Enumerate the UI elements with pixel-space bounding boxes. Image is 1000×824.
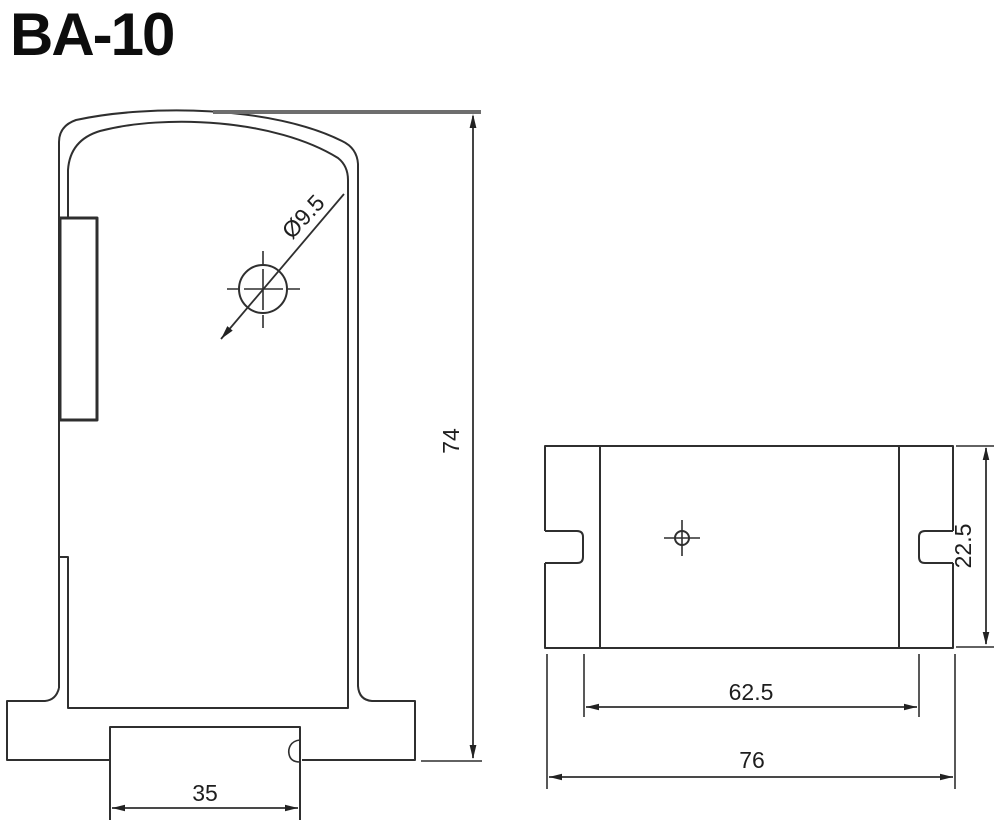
front-dim-rail-width-arrow-right	[285, 805, 298, 812]
side-view: 22.5 62.5 76	[545, 446, 994, 789]
side-outer-profile	[545, 446, 953, 648]
front-left-tab	[60, 218, 97, 420]
side-dim-overall-width-arrow-left	[549, 774, 562, 781]
front-hole-diameter-label: Ø9.5	[277, 189, 330, 243]
front-dim-rail-width-label: 35	[192, 780, 218, 806]
front-dim-height-label: 74	[438, 428, 464, 454]
side-dim-height-arrow-top	[983, 447, 990, 460]
side-dim-height-label: 22.5	[950, 524, 976, 569]
side-dim-inner-span-label: 62.5	[729, 679, 774, 705]
drawing-canvas: BA-10 Ø9.5	[0, 0, 1000, 824]
front-dim-height-arrow-top	[470, 114, 477, 128]
front-hole-leader-line	[221, 194, 344, 339]
front-dim-rail-width: 35	[112, 780, 298, 811]
front-dim-height-arrow-bottom	[470, 745, 477, 759]
side-slot-right	[919, 531, 953, 563]
side-dim-height-arrow-bottom	[983, 632, 990, 645]
front-rail-tab	[110, 727, 300, 820]
side-dim-inner-span: 62.5	[584, 654, 919, 717]
side-dim-inner-span-arrow-right	[904, 704, 917, 711]
side-dim-height: 22.5	[950, 446, 994, 647]
front-hole: Ø9.5	[221, 189, 344, 339]
technical-drawing: Ø9.5 74 35	[0, 0, 1000, 824]
side-dim-overall-width-label: 76	[739, 747, 765, 773]
side-dim-inner-span-arrow-left	[586, 704, 599, 711]
side-dim-overall-width: 76	[547, 654, 955, 789]
front-view: Ø9.5 74 35	[7, 110, 482, 820]
side-slot-left	[545, 531, 583, 563]
front-dim-rail-width-arrow-left	[112, 805, 125, 812]
front-rail-hook	[289, 740, 300, 762]
side-hole	[664, 520, 700, 556]
side-dim-overall-width-arrow-right	[940, 774, 953, 781]
